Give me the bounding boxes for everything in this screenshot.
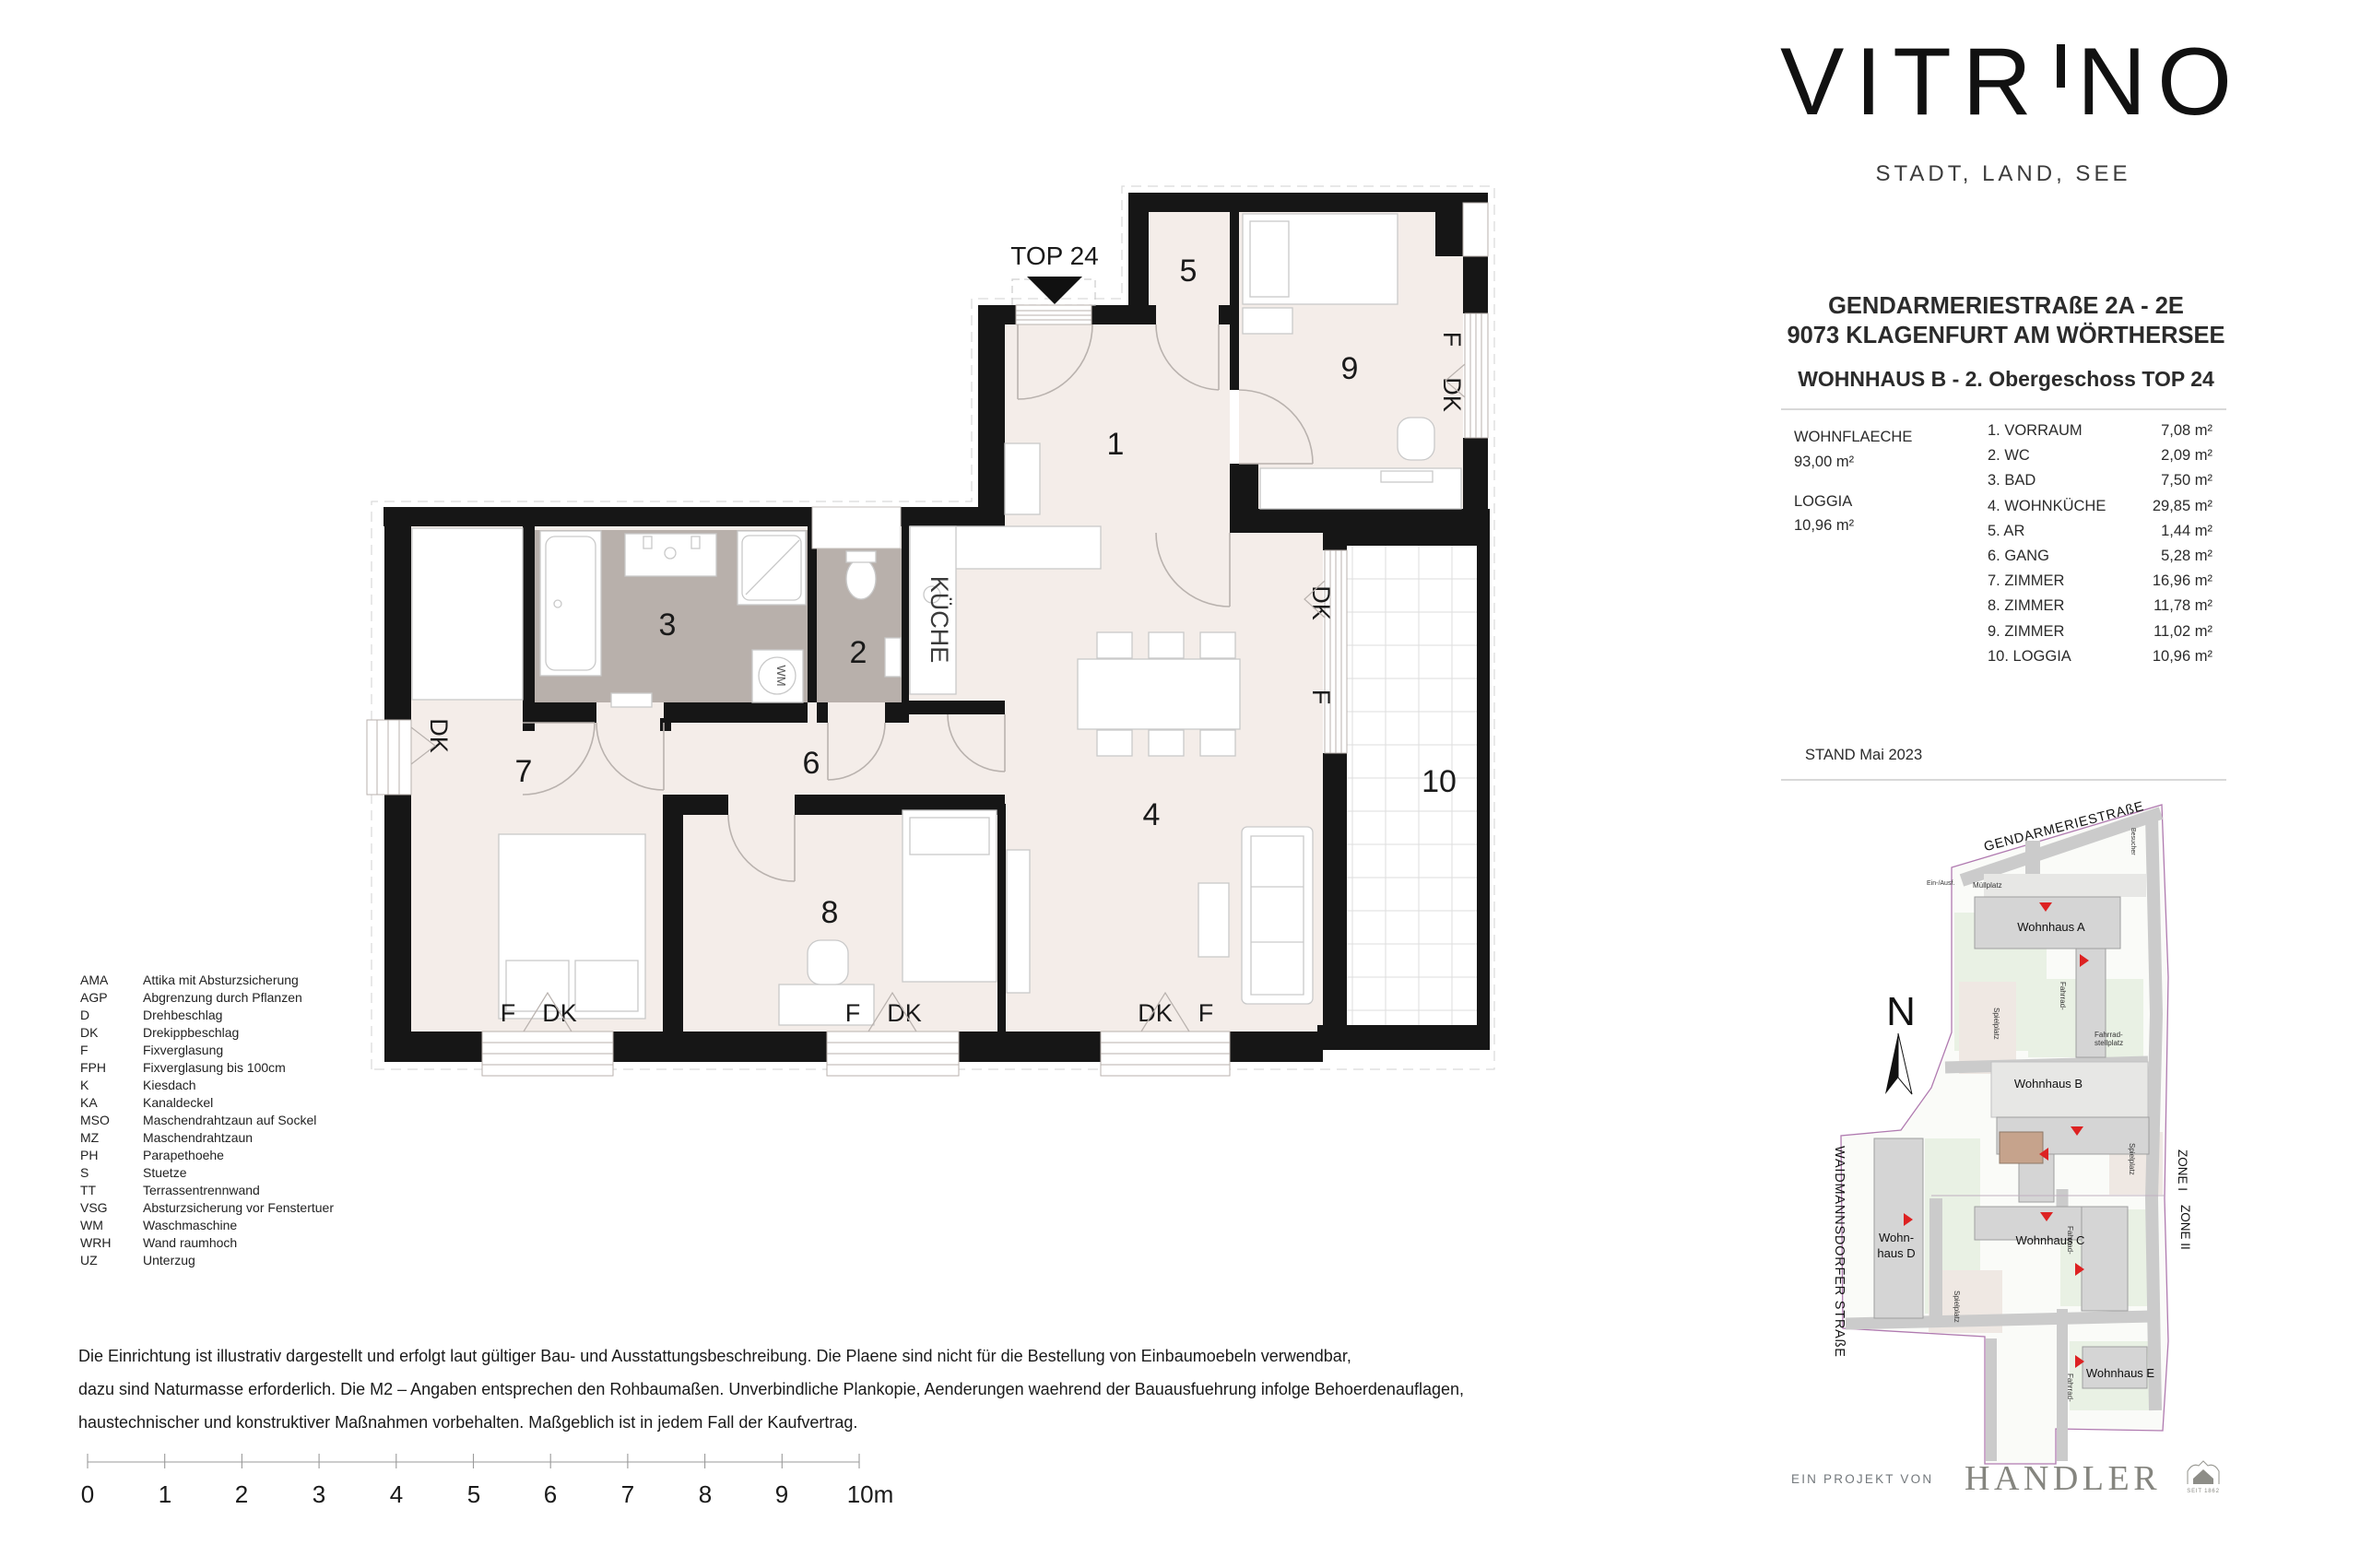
svg-text:Maschendrahtzaun auf Sockel: Maschendrahtzaun auf Sockel (143, 1113, 316, 1127)
svg-text:9: 9 (1341, 351, 1359, 386)
svg-text:1. VORRAUM: 1. VORRAUM (1988, 422, 2083, 439)
svg-text:4: 4 (390, 1480, 403, 1508)
svg-text:10m: 10m (847, 1480, 894, 1508)
svg-text:Wohnhaus E: Wohnhaus E (2086, 1366, 2155, 1380)
svg-text:2: 2 (235, 1480, 248, 1508)
svg-text:Unterzug: Unterzug (143, 1253, 195, 1267)
svg-text:2. WC: 2. WC (1988, 447, 2030, 464)
svg-text:93,00 m²: 93,00 m² (1794, 454, 1855, 470)
svg-text:Terrassentrennwand: Terrassentrennwand (143, 1183, 260, 1197)
svg-text:haustechnischer und konstrukti: haustechnischer und konstruktiver Maßnah… (78, 1413, 857, 1432)
svg-text:Fahrrad-: Fahrrad- (2059, 982, 2067, 1010)
svg-text:2,09 m²: 2,09 m² (2161, 447, 2212, 464)
svg-text:10,96 m²: 10,96 m² (2153, 648, 2213, 665)
svg-text:LOGGIA: LOGGIA (1794, 493, 1852, 510)
svg-text:Spielplatz: Spielplatz (1953, 1291, 1961, 1323)
svg-text:Kanaldeckel: Kanaldeckel (143, 1095, 213, 1110)
svg-text:7,50 m²: 7,50 m² (2161, 472, 2212, 489)
svg-text:8: 8 (699, 1480, 712, 1508)
svg-text:16,96 m²: 16,96 m² (2153, 572, 2213, 589)
svg-text:KA: KA (80, 1095, 98, 1110)
svg-text:Abgrenzung durch Pflanzen: Abgrenzung durch Pflanzen (143, 990, 302, 1005)
svg-text:Wohnhaus A: Wohnhaus A (2017, 920, 2085, 934)
svg-text:haus D: haus D (1877, 1246, 1915, 1260)
svg-text:11,02 m²: 11,02 m² (2153, 623, 2212, 640)
svg-text:NO: NO (2077, 29, 2243, 136)
svg-text:Die Einrichtung ist illustrati: Die Einrichtung ist illustrativ dargeste… (78, 1347, 1351, 1365)
svg-text:WAIDMANNSDORFER STRAßE: WAIDMANNSDORFER STRAßE (1832, 1146, 1847, 1358)
svg-text:5: 5 (1180, 253, 1198, 289)
svg-text:MZ: MZ (80, 1130, 100, 1145)
svg-text:2: 2 (850, 635, 867, 670)
svg-text:TOP 24: TOP 24 (1010, 242, 1098, 270)
svg-text:dazu sind Naturmasse erforderl: dazu sind Naturmasse erforderlich. Die M… (78, 1380, 1464, 1398)
svg-text:9. ZIMMER: 9. ZIMMER (1988, 623, 2065, 640)
svg-text:Fixverglasung bis 100cm: Fixverglasung bis 100cm (143, 1060, 286, 1075)
svg-text:stellplatz: stellplatz (2094, 1039, 2123, 1047)
svg-text:Wohn-: Wohn- (1879, 1231, 1914, 1244)
svg-text:8. ZIMMER: 8. ZIMMER (1988, 597, 2065, 614)
svg-text:Stuetze: Stuetze (143, 1165, 187, 1180)
svg-text:STAND Mai 2023: STAND Mai 2023 (1805, 747, 1922, 763)
svg-text:10. LOGGIA: 10. LOGGIA (1988, 648, 2071, 665)
svg-text:3: 3 (659, 607, 677, 643)
svg-text:Wand raumhoch: Wand raumhoch (143, 1235, 237, 1250)
svg-text:8: 8 (821, 895, 839, 930)
svg-text:Ein-/Ausf.: Ein-/Ausf. (1927, 880, 1954, 887)
svg-text:4. WOHNKÜCHE: 4. WOHNKÜCHE (1988, 498, 2106, 514)
svg-text:STADT, LAND, SEE: STADT, LAND, SEE (1876, 161, 2131, 186)
svg-text:Parapethoehe: Parapethoehe (143, 1148, 224, 1162)
svg-text:GENDARMERIESTRAßE 2A - 2E: GENDARMERIESTRAßE 2A - 2E (1828, 293, 2184, 319)
svg-text:WM: WM (80, 1218, 103, 1232)
svg-text:AMA: AMA (80, 973, 109, 987)
svg-text:MSO: MSO (80, 1113, 110, 1127)
svg-text:6: 6 (544, 1480, 557, 1508)
svg-text:5. AR: 5. AR (1988, 523, 2024, 539)
svg-text:3. BAD: 3. BAD (1988, 472, 2035, 489)
svg-text:Waschmaschine: Waschmaschine (143, 1218, 237, 1232)
svg-text:KÜCHE: KÜCHE (926, 576, 953, 664)
svg-text:0: 0 (81, 1480, 94, 1508)
svg-text:F: F (1198, 999, 1214, 1027)
svg-text:WRH: WRH (80, 1235, 111, 1250)
svg-text:Fixverglasung: Fixverglasung (143, 1043, 223, 1057)
svg-text:1,44 m²: 1,44 m² (2161, 523, 2212, 539)
svg-text:1: 1 (159, 1480, 171, 1508)
svg-text:7: 7 (621, 1480, 634, 1508)
svg-text:ZONE I: ZONE I (2176, 1149, 2189, 1191)
svg-text:TT: TT (80, 1183, 97, 1197)
svg-text:F: F (501, 999, 516, 1027)
svg-text:11,78 m²: 11,78 m² (2153, 597, 2212, 614)
svg-text:Fahrrad-: Fahrrad- (2066, 1226, 2074, 1255)
svg-text:AGP: AGP (80, 990, 108, 1005)
svg-text:Spielplatz: Spielplatz (1992, 1008, 2000, 1040)
svg-text:29,85 m²: 29,85 m² (2153, 498, 2213, 514)
svg-text:DK: DK (425, 718, 453, 753)
svg-text:Absturzsicherung vor Fenstertu: Absturzsicherung vor Fenstertuer (143, 1200, 334, 1215)
svg-text:WOHNHAUS B - 2. Obergeschoss T: WOHNHAUS B - 2. Obergeschoss TOP 24 (1798, 367, 2214, 391)
svg-text:Müllplatz: Müllplatz (1973, 881, 2002, 890)
svg-text:FPH: FPH (80, 1060, 106, 1075)
svg-text:Attika mit Absturzsicherung: Attika mit Absturzsicherung (143, 973, 299, 987)
svg-text:EIN PROJEKT VON: EIN PROJEKT VON (1791, 1472, 1933, 1486)
svg-text:PH: PH (80, 1148, 98, 1162)
svg-text:WM: WM (774, 665, 788, 686)
svg-text:SEIT 1862: SEIT 1862 (2187, 1489, 2219, 1494)
svg-text:Fahrrad-: Fahrrad- (2066, 1373, 2074, 1402)
svg-text:K: K (80, 1078, 89, 1092)
svg-text:5,28 m²: 5,28 m² (2161, 548, 2212, 564)
svg-text:DK: DK (80, 1025, 99, 1040)
svg-text:9: 9 (775, 1480, 788, 1508)
svg-text:Kiesdach: Kiesdach (143, 1078, 196, 1092)
svg-text:Besucher: Besucher (2130, 828, 2136, 855)
svg-text:DK: DK (1138, 999, 1173, 1027)
svg-text:4: 4 (1143, 797, 1161, 832)
svg-text:ZONE II: ZONE II (2178, 1205, 2192, 1250)
svg-text:S: S (80, 1165, 88, 1180)
svg-text:Wohnhaus B: Wohnhaus B (2014, 1077, 2083, 1091)
svg-text:N: N (1886, 989, 1916, 1034)
svg-text:F: F (80, 1043, 88, 1057)
svg-text:5: 5 (467, 1480, 480, 1508)
svg-text:Maschendrahtzaun: Maschendrahtzaun (143, 1130, 253, 1145)
svg-text:1: 1 (1107, 427, 1125, 462)
svg-text:Spielplatz: Spielplatz (2128, 1143, 2136, 1175)
svg-text:9073 KLAGENFURT AM WÖRTHERSEE: 9073 KLAGENFURT AM WÖRTHERSEE (1787, 322, 2224, 348)
svg-text:Fahrrad-: Fahrrad- (2094, 1031, 2123, 1039)
svg-text:VSG: VSG (80, 1200, 108, 1215)
svg-text:6: 6 (803, 746, 820, 781)
svg-text:Drekippbeschlag: Drekippbeschlag (143, 1025, 239, 1040)
svg-text:F: F (1438, 332, 1466, 348)
svg-text:6. GANG: 6. GANG (1988, 548, 2049, 564)
svg-text:UZ: UZ (80, 1253, 98, 1267)
svg-text:F: F (845, 999, 861, 1027)
svg-text:7: 7 (515, 754, 533, 789)
svg-text:3: 3 (313, 1480, 325, 1508)
svg-text:D: D (80, 1008, 89, 1022)
svg-text:10: 10 (1422, 764, 1457, 799)
svg-text:10,96 m²: 10,96 m² (1794, 517, 1855, 534)
svg-text:7,08 m²: 7,08 m² (2161, 422, 2212, 439)
svg-text:Drehbeschlag: Drehbeschlag (143, 1008, 222, 1022)
svg-text:HANDLER: HANDLER (1965, 1459, 2161, 1498)
svg-text:7. ZIMMER: 7. ZIMMER (1988, 572, 2065, 589)
svg-text:F: F (1307, 690, 1335, 705)
svg-text:WOHNFLAECHE: WOHNFLAECHE (1794, 429, 1912, 445)
svg-text:VITR: VITR (1780, 29, 2043, 136)
